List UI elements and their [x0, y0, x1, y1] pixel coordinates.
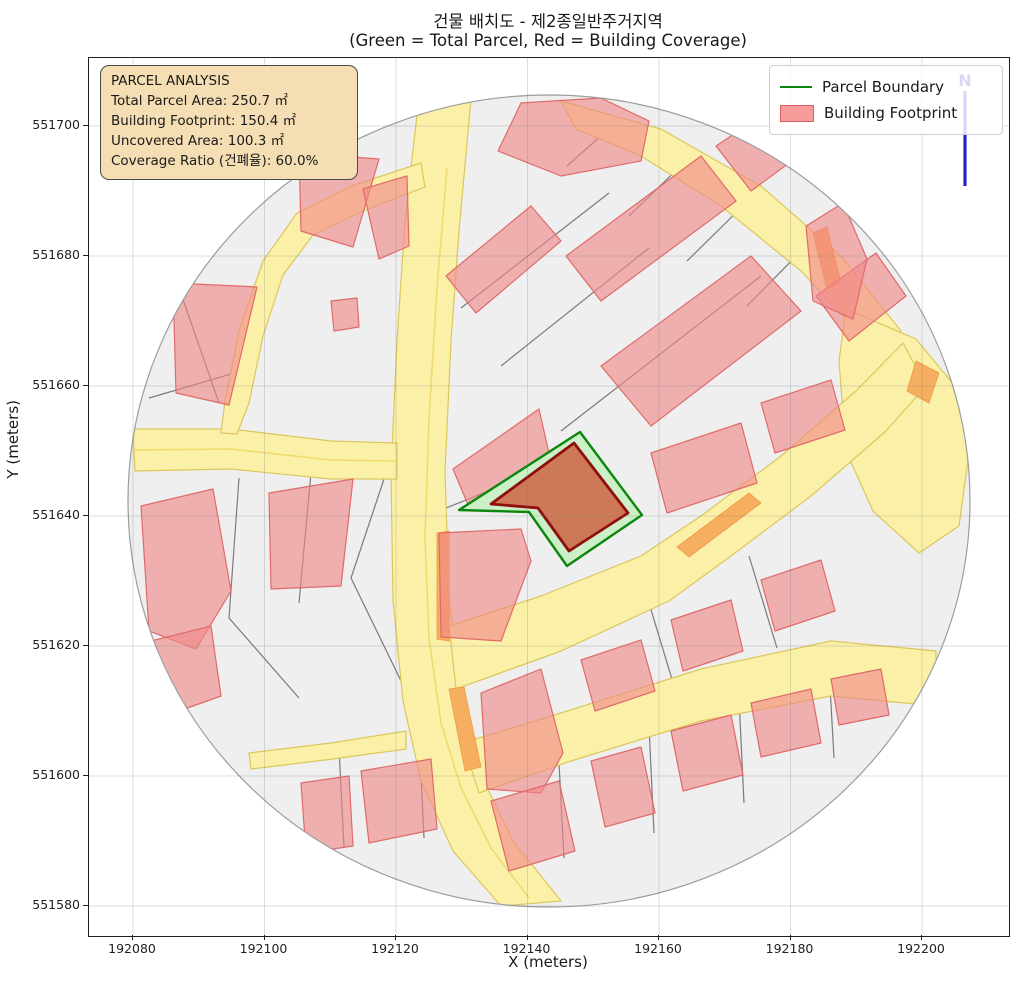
- x-tick-mark: [790, 935, 791, 940]
- x-tick-mark: [921, 935, 922, 940]
- x-tick-label: 192180: [745, 941, 835, 956]
- figure-subtitle: (Green = Total Parcel, Red = Building Co…: [88, 31, 1008, 50]
- plot-area: N PARCEL ANALYSIS Total Parcel Area: 250…: [88, 57, 1010, 937]
- building: [331, 298, 359, 331]
- legend-label: Parcel Boundary: [822, 78, 944, 96]
- parcel-analysis-line: Total Parcel Area: 250.7 ㎡: [111, 92, 347, 112]
- y-tick-mark: [83, 515, 88, 516]
- y-tick-label: 551700: [8, 117, 80, 132]
- building: [361, 759, 437, 843]
- x-tick-mark: [658, 935, 659, 940]
- x-tick-mark: [395, 935, 396, 940]
- x-tick-mark: [132, 935, 133, 940]
- legend-item-building-footprint: Building Footprint: [780, 100, 992, 126]
- green-line-icon: [780, 86, 812, 88]
- parcel-analysis-title: PARCEL ANALYSIS: [111, 72, 347, 92]
- building: [269, 479, 353, 589]
- map-canvas: N: [89, 58, 1009, 936]
- x-tick-label: 192100: [219, 941, 309, 956]
- y-tick-label: 551600: [8, 767, 80, 782]
- x-tick-label: 192200: [876, 941, 966, 956]
- y-tick-mark: [83, 385, 88, 386]
- y-tick-mark: [83, 255, 88, 256]
- figure: 건물 배치도 - 제2종일반주거지역 (Green = Total Parcel…: [0, 0, 1020, 990]
- y-tick-mark: [83, 645, 88, 646]
- legend-item-parcel-boundary: Parcel Boundary: [780, 74, 992, 100]
- x-tick-mark: [527, 935, 528, 940]
- figure-title: 건물 배치도 - 제2종일반주거지역: [88, 8, 1008, 32]
- legend-label: Building Footprint: [824, 104, 957, 122]
- y-tick-mark: [83, 775, 88, 776]
- red-patch-icon: [780, 105, 814, 122]
- parcel-analysis-line: Uncovered Area: 100.3 ㎡: [111, 132, 347, 152]
- y-tick-label: 551680: [8, 247, 80, 262]
- y-tick-mark: [83, 125, 88, 126]
- x-tick-label: 192140: [482, 941, 572, 956]
- y-tick-label: 551620: [8, 637, 80, 652]
- x-tick-label: 192160: [613, 941, 703, 956]
- x-tick-label: 192080: [87, 941, 177, 956]
- x-tick-mark: [264, 935, 265, 940]
- y-tick-label: 551640: [8, 507, 80, 522]
- y-axis-label: Y (meters): [4, 400, 22, 479]
- building: [301, 776, 353, 853]
- parcel-analysis-line: Building Footprint: 150.4 ㎡: [111, 112, 347, 132]
- parcel-analysis-line: Coverage Ratio (건폐율): 60.0%: [111, 152, 347, 172]
- legend: Parcel Boundary Building Footprint: [769, 65, 1003, 135]
- x-tick-label: 192120: [350, 941, 440, 956]
- y-tick-label: 551580: [8, 897, 80, 912]
- y-tick-label: 551660: [8, 377, 80, 392]
- parcel-analysis-box: PARCEL ANALYSIS Total Parcel Area: 250.7…: [100, 65, 358, 180]
- y-tick-mark: [83, 905, 88, 906]
- building: [831, 669, 889, 725]
